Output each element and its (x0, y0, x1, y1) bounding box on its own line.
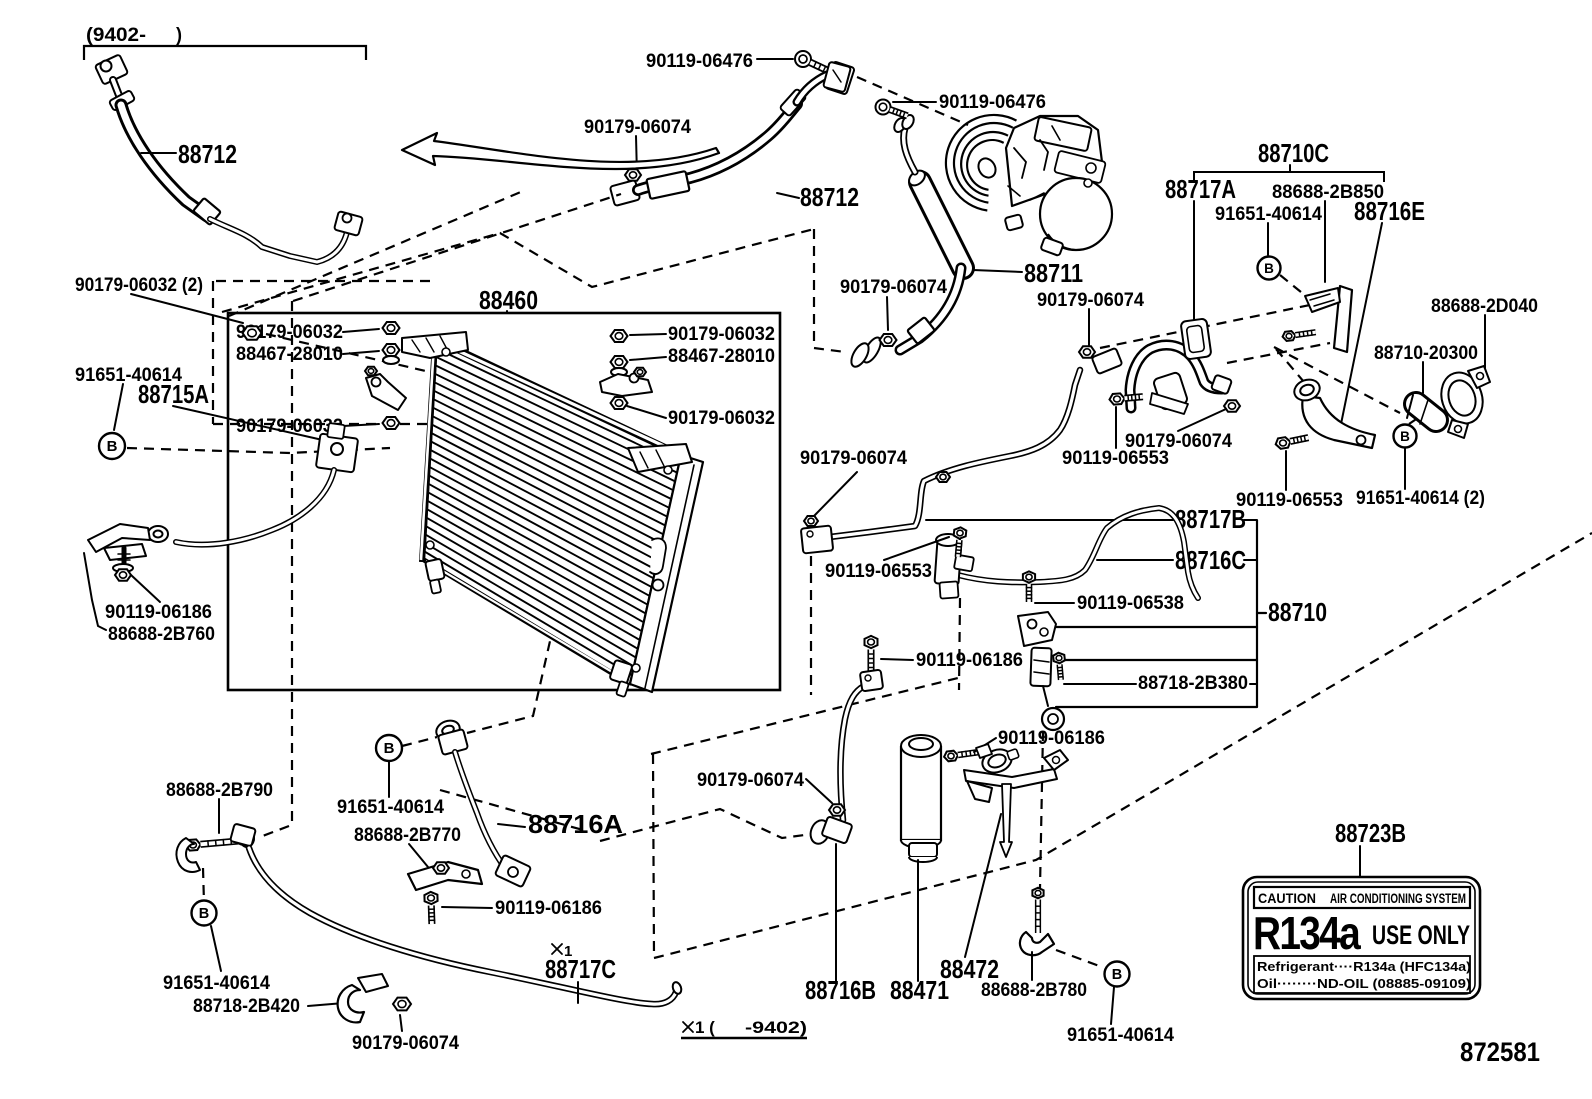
svg-text:88712: 88712 (800, 182, 859, 212)
svg-text:B: B (199, 906, 209, 922)
svg-text:88717B: 88717B (1175, 504, 1246, 534)
svg-text:Refrigerant····R134a (HFC134a): Refrigerant····R134a (HFC134a) (1257, 959, 1471, 974)
svg-text:88710-20300: 88710-20300 (1374, 342, 1478, 364)
svg-text:90119-06553: 90119-06553 (1062, 447, 1169, 469)
svg-text:USE ONLY: USE ONLY (1372, 920, 1470, 950)
svg-text:90179-06032: 90179-06032 (668, 407, 775, 429)
svg-text:88718-2B380: 88718-2B380 (1138, 672, 1248, 694)
svg-text:88688-2D040: 88688-2D040 (1431, 295, 1538, 317)
svg-text:90119-06476: 90119-06476 (646, 50, 753, 72)
svg-text:AIR CONDITIONING SYSTEM: AIR CONDITIONING SYSTEM (1330, 891, 1466, 906)
svg-text:90119-06476: 90119-06476 (939, 91, 1046, 113)
svg-text:88688-2B760: 88688-2B760 (108, 623, 215, 645)
svg-text:88712: 88712 (178, 139, 237, 169)
svg-text:88717A: 88717A (1165, 174, 1236, 204)
svg-text:872581: 872581 (1460, 1037, 1540, 1067)
svg-text:90119-06186: 90119-06186 (916, 649, 1023, 671)
svg-text:88723B: 88723B (1335, 818, 1406, 848)
svg-text:90119-06186: 90119-06186 (105, 601, 212, 623)
svg-text:91651-40614: 91651-40614 (1215, 203, 1322, 225)
svg-text:88710C: 88710C (1258, 138, 1329, 168)
svg-text:): ) (176, 24, 182, 46)
svg-text:91651-40614: 91651-40614 (337, 796, 444, 818)
svg-text:88716A: 88716A (528, 809, 623, 839)
svg-text:88688-2B780: 88688-2B780 (981, 979, 1087, 1001)
svg-text:88688-2B770: 88688-2B770 (354, 824, 461, 846)
svg-text:91651-40614: 91651-40614 (1067, 1024, 1174, 1046)
svg-text:91651-40614 (2): 91651-40614 (2) (1356, 487, 1485, 509)
svg-text:B: B (1112, 967, 1122, 983)
svg-text:B: B (1400, 429, 1410, 444)
svg-text:88710: 88710 (1268, 597, 1327, 627)
svg-text:88467-28010: 88467-28010 (668, 345, 775, 367)
svg-text:88460: 88460 (479, 285, 538, 315)
svg-text:90179-06074: 90179-06074 (1037, 289, 1144, 311)
svg-text:90179-06074: 90179-06074 (840, 276, 947, 298)
svg-text:CAUTION: CAUTION (1258, 890, 1316, 906)
svg-text:90119-06186: 90119-06186 (998, 727, 1105, 749)
svg-text:88688-2B790: 88688-2B790 (166, 779, 273, 801)
svg-text:R134a: R134a (1253, 907, 1361, 959)
svg-text:91651-40614: 91651-40614 (163, 972, 270, 994)
svg-text:90179-06074: 90179-06074 (352, 1032, 459, 1054)
svg-text:88717C: 88717C (545, 954, 616, 984)
svg-text:88716E: 88716E (1354, 196, 1425, 226)
svg-text:88711: 88711 (1024, 258, 1083, 288)
svg-text:90119-06553: 90119-06553 (825, 560, 932, 582)
svg-text:B: B (107, 438, 118, 455)
svg-text:90179-06074: 90179-06074 (697, 769, 804, 791)
svg-text:90119-06538: 90119-06538 (1077, 592, 1184, 614)
svg-text:88718-2B420: 88718-2B420 (193, 995, 300, 1017)
svg-text:88716B: 88716B (805, 975, 876, 1005)
svg-text:90179-06074: 90179-06074 (584, 116, 691, 138)
svg-text:B: B (384, 740, 395, 757)
svg-text:90119-06186: 90119-06186 (495, 897, 602, 919)
svg-text:90179-06032: 90179-06032 (668, 323, 775, 345)
svg-text:90179-06032 (2): 90179-06032 (2) (75, 274, 203, 296)
svg-text:-9402): -9402) (745, 1018, 807, 1037)
svg-text:B: B (1264, 261, 1274, 276)
svg-text:90119-06553: 90119-06553 (1236, 489, 1343, 511)
svg-text:Oil········ND-OIL (08885-09109: Oil········ND-OIL (08885-09109) (1257, 976, 1471, 991)
svg-text:(9402-: (9402- (86, 24, 146, 46)
svg-text:1 (: 1 ( (695, 1018, 715, 1037)
svg-text:88715A: 88715A (138, 379, 209, 409)
svg-text:90179-06074: 90179-06074 (800, 447, 907, 469)
svg-text:88467-28010: 88467-28010 (236, 343, 343, 365)
